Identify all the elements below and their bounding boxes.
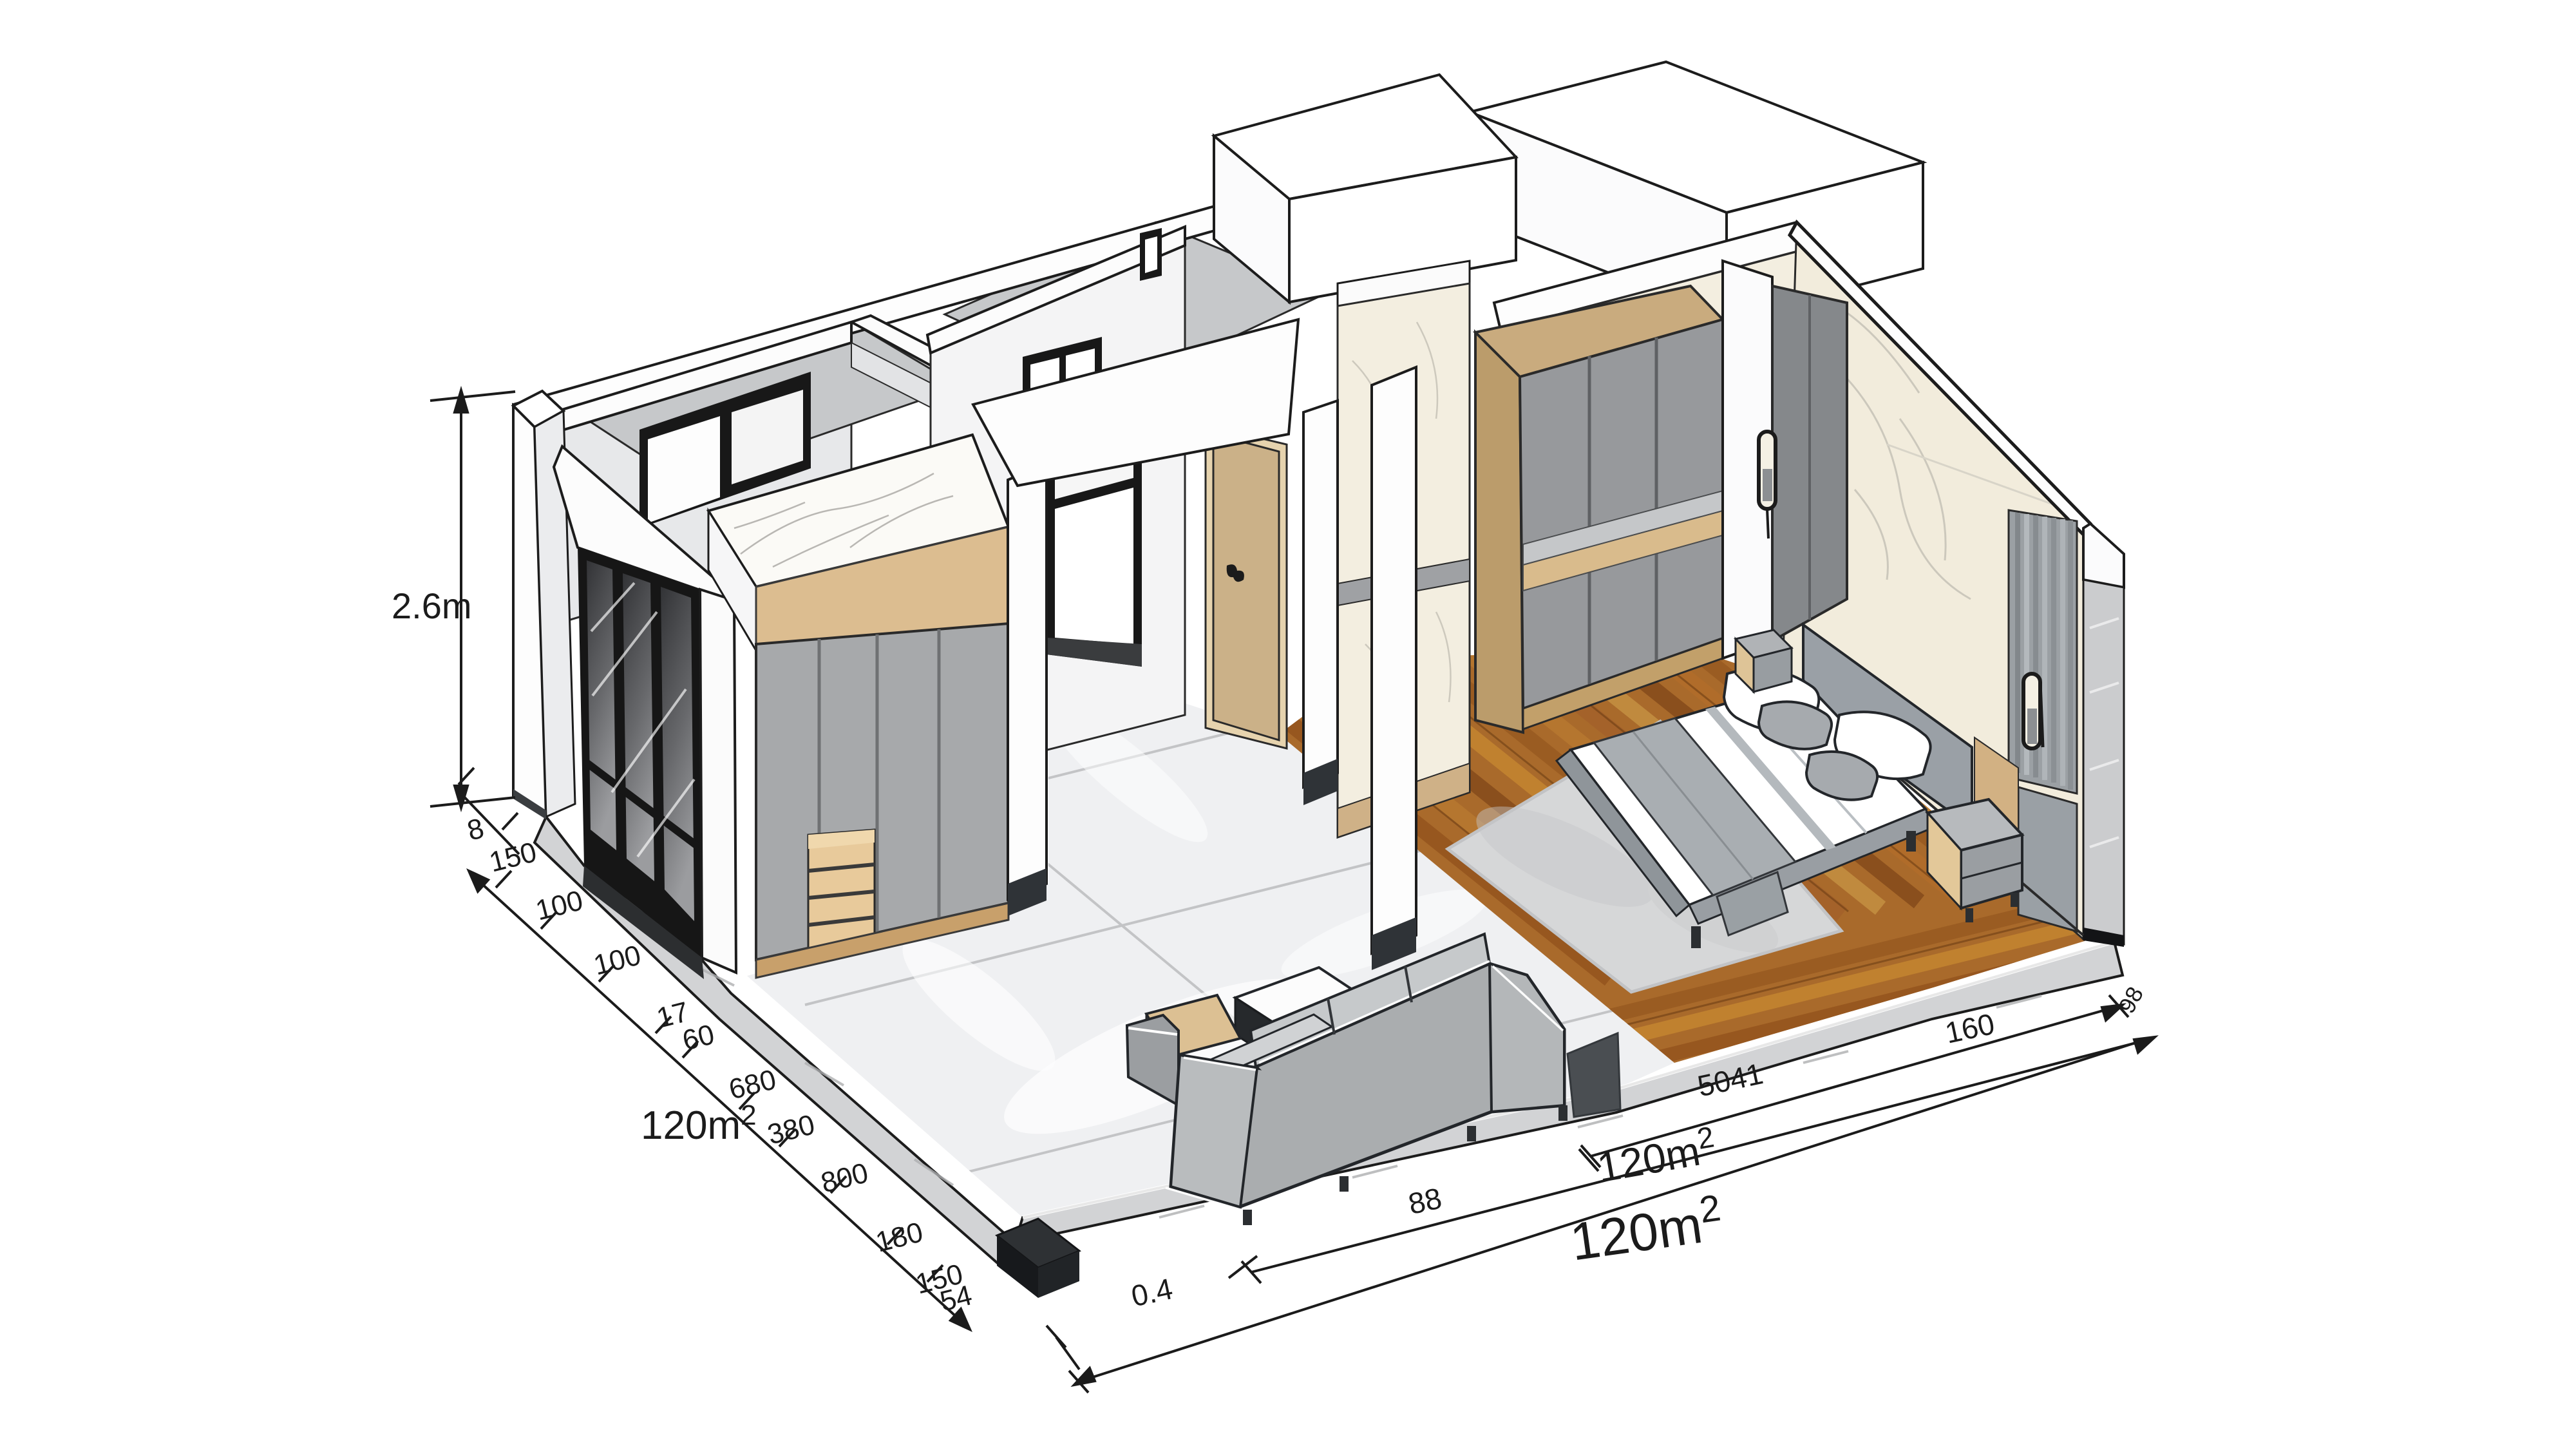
- svg-text:88: 88: [1405, 1181, 1444, 1221]
- svg-text:120m2: 120m2: [641, 1100, 757, 1148]
- svg-text:2.6m: 2.6m: [392, 586, 472, 626]
